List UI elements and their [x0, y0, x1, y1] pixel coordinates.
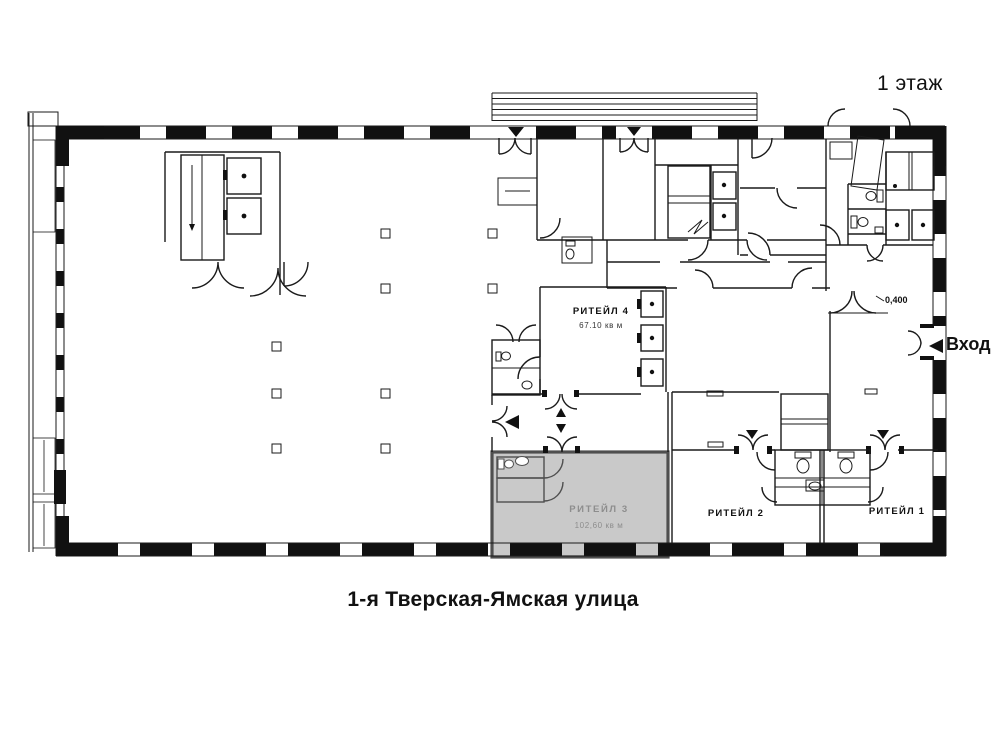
entrance-vestibule	[828, 291, 934, 392]
retail-1-2-block	[757, 450, 888, 543]
room-label-retail-2: РИТЕЙЛ 2	[708, 508, 764, 519]
room-label-retail-4: РИТЕЙЛ 4	[573, 306, 629, 317]
door-in-icon	[627, 127, 641, 136]
wc-fixtures	[851, 190, 883, 233]
floor-plan-page: 1 этаж 1-я Тверская-Ямская улица Вход 0,…	[0, 0, 1000, 750]
column-grid	[272, 229, 497, 453]
room-area-retail-3: 102,60 кв м	[575, 521, 624, 530]
entrance-label: Вход	[946, 334, 991, 355]
wc-and-tambour	[492, 325, 580, 453]
stair-core-left	[165, 152, 308, 296]
room-label-retail-1: РИТЕЙЛ 1	[869, 506, 925, 517]
floor-title: 1 этаж	[877, 72, 943, 96]
entrance-door-arcs	[908, 331, 921, 355]
door-out-icon	[556, 408, 566, 417]
room-area-retail-4: 67.10 кв м	[579, 321, 623, 330]
level-mark: 0,400	[885, 295, 908, 305]
door-in-icon	[746, 430, 758, 439]
left-gallery-stairs	[28, 112, 58, 552]
street-label: 1-я Тверская-Ямская улица	[347, 588, 638, 612]
entrance-arrow-icon	[929, 339, 943, 353]
door-in-icon	[556, 424, 566, 433]
corridor-walls	[603, 139, 830, 291]
entrance-canopy	[492, 93, 757, 121]
window-sill-markers	[707, 389, 877, 447]
door-in-icon	[508, 127, 524, 137]
service-entry-arcs	[828, 109, 910, 126]
top-center-core	[498, 138, 826, 263]
entry-arrow-icon	[505, 415, 519, 429]
floor-plan-drawing	[0, 0, 1000, 750]
south-corridor	[668, 389, 938, 543]
room-label-retail-3: РИТЕЙЛ 3	[569, 504, 629, 515]
